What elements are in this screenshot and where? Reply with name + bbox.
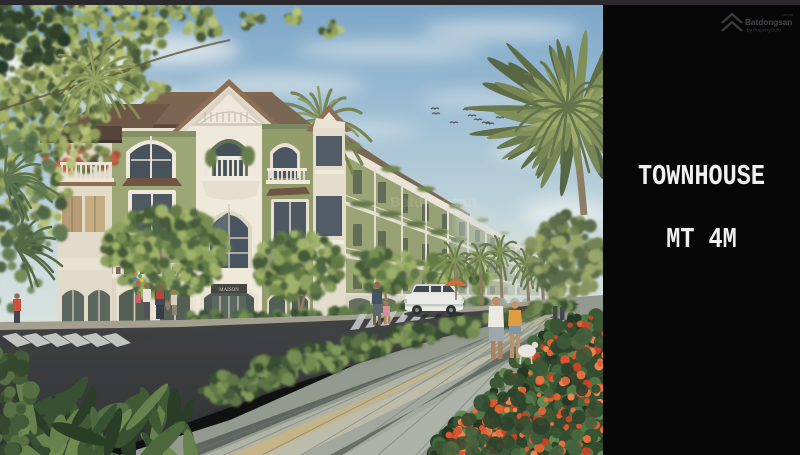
svg-text:.com.vn: .com.vn: [781, 13, 793, 17]
svg-text:Batdongsan: Batdongsan: [745, 18, 792, 27]
svg-text:by PropertyGuru: by PropertyGuru: [747, 28, 781, 33]
